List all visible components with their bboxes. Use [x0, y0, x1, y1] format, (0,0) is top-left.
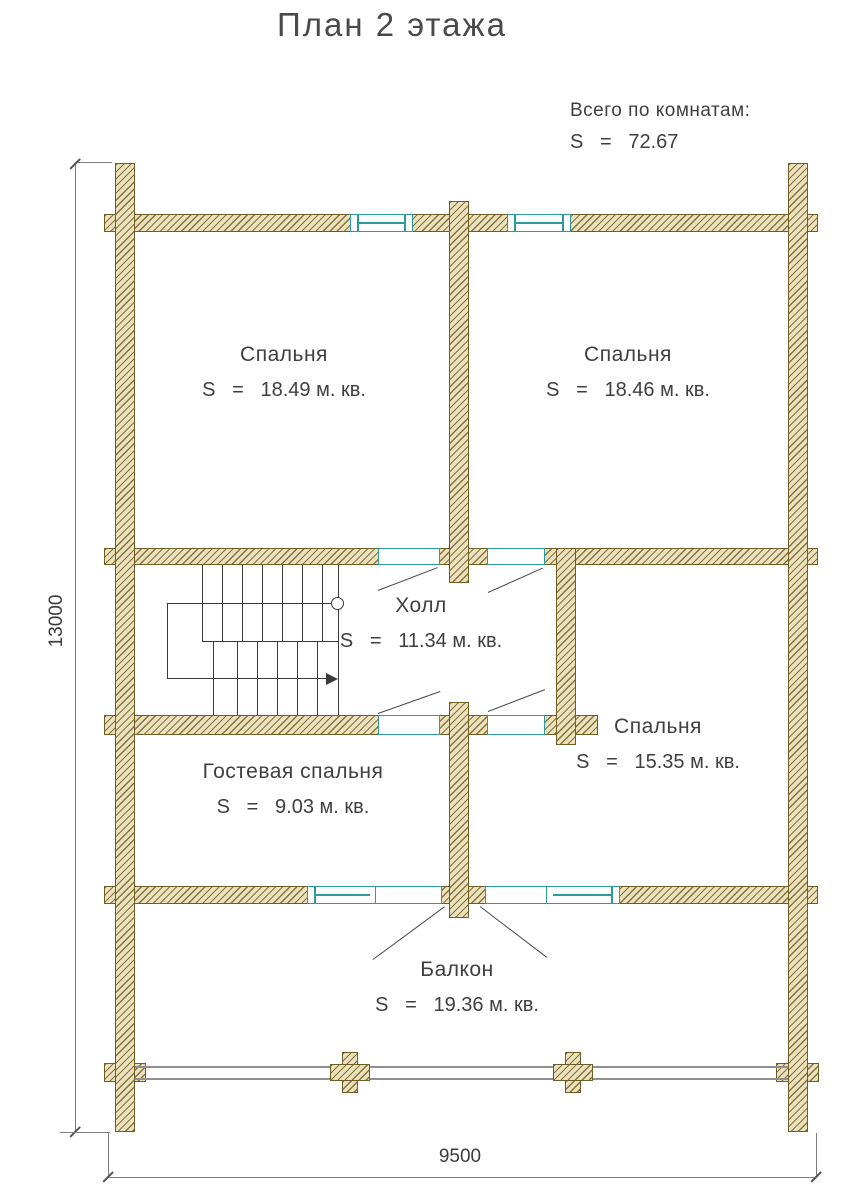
door-opening-bedroom-left [378, 548, 440, 565]
window-top-left [350, 214, 413, 232]
door-swing-line [480, 906, 548, 958]
window-glass-line [357, 222, 406, 223]
door-opening-bedroom-right [487, 548, 545, 565]
window-glass-line [553, 894, 613, 895]
door-opening-guestroom [378, 715, 440, 735]
room-area: S = 18.49 м. кв. [179, 379, 389, 402]
total-area-value: S = 72.67 [570, 131, 678, 154]
room-label-hall: Холл S = 11.34 м. кв. [316, 594, 526, 653]
total-area-label: Всего по комнатам: [570, 100, 750, 122]
room-name: Спальня [523, 343, 733, 367]
stair-direction-arrow-icon [326, 673, 338, 685]
door-opening-bedroom-lower [487, 715, 545, 735]
room-name: Балкон [352, 958, 562, 982]
window-balcony-right [546, 886, 620, 904]
dim-label-height: 13000 [46, 566, 68, 676]
window-glass-line [514, 222, 564, 223]
room-area: S = 11.34 м. кв. [316, 630, 526, 653]
room-name: Гостевая спальня [188, 760, 398, 784]
wall-guestroom-divider [449, 702, 469, 918]
stair-walkline-lower [167, 678, 326, 679]
wall-right-exterior [788, 163, 808, 1132]
door-swing-line [378, 567, 438, 591]
wall-left-exterior [115, 163, 135, 1132]
dim-extension-bottom-left [108, 1132, 109, 1178]
balcony-door-right [485, 886, 548, 904]
room-label-balcony: Балкон S = 19.36 м. кв. [352, 958, 562, 1017]
room-area: S = 18.46 м. кв. [523, 379, 733, 402]
room-name: Холл [316, 594, 526, 618]
stair-walkline-upper [167, 603, 333, 604]
door-swing-line [488, 689, 545, 712]
dim-line-height [75, 164, 76, 1133]
room-area: S = 19.36 м. кв. [352, 994, 562, 1017]
room-name: Спальня [553, 715, 763, 739]
room-label-bedroom-1: Спальня S = 18.49 м. кв. [179, 343, 389, 402]
dim-extension-top-left [75, 162, 112, 163]
door-swing-line [373, 906, 445, 960]
room-name: Спальня [179, 343, 389, 367]
stair-walkline-return [167, 603, 168, 679]
room-area: S = 9.03 м. кв. [188, 796, 398, 819]
dim-line-width [108, 1177, 817, 1178]
balcony-railing-line-outer [135, 1066, 788, 1068]
dim-connector-bottom-left [60, 1132, 110, 1133]
room-area: S = 15.35 м. кв. [553, 751, 763, 774]
wall-bedroom-divider [449, 201, 469, 583]
window-balcony-left [307, 886, 377, 904]
railing-post-right-horizontal [553, 1064, 593, 1081]
room-label-guest-bedroom: Гостевая спальня S = 9.03 м. кв. [188, 760, 398, 819]
balcony-door-left [375, 886, 442, 904]
floor-plan-drawing: План 2 этажа Всего по комнатам: S = 72.6… [0, 0, 861, 1200]
balcony-railing-line-inner [135, 1078, 788, 1080]
dim-label-width: 9500 [400, 1146, 520, 1168]
page-title: План 2 этажа [232, 6, 552, 44]
room-label-bedroom-3: Спальня S = 15.35 м. кв. [553, 715, 763, 774]
dim-extension-bottom-right [816, 1133, 817, 1178]
door-swing-line [378, 691, 441, 714]
railing-post-left-horizontal [330, 1064, 370, 1081]
room-label-bedroom-2: Спальня S = 18.46 м. кв. [523, 343, 733, 402]
window-top-right [507, 214, 571, 232]
door-swing-line [488, 568, 543, 593]
window-glass-line [314, 894, 370, 895]
